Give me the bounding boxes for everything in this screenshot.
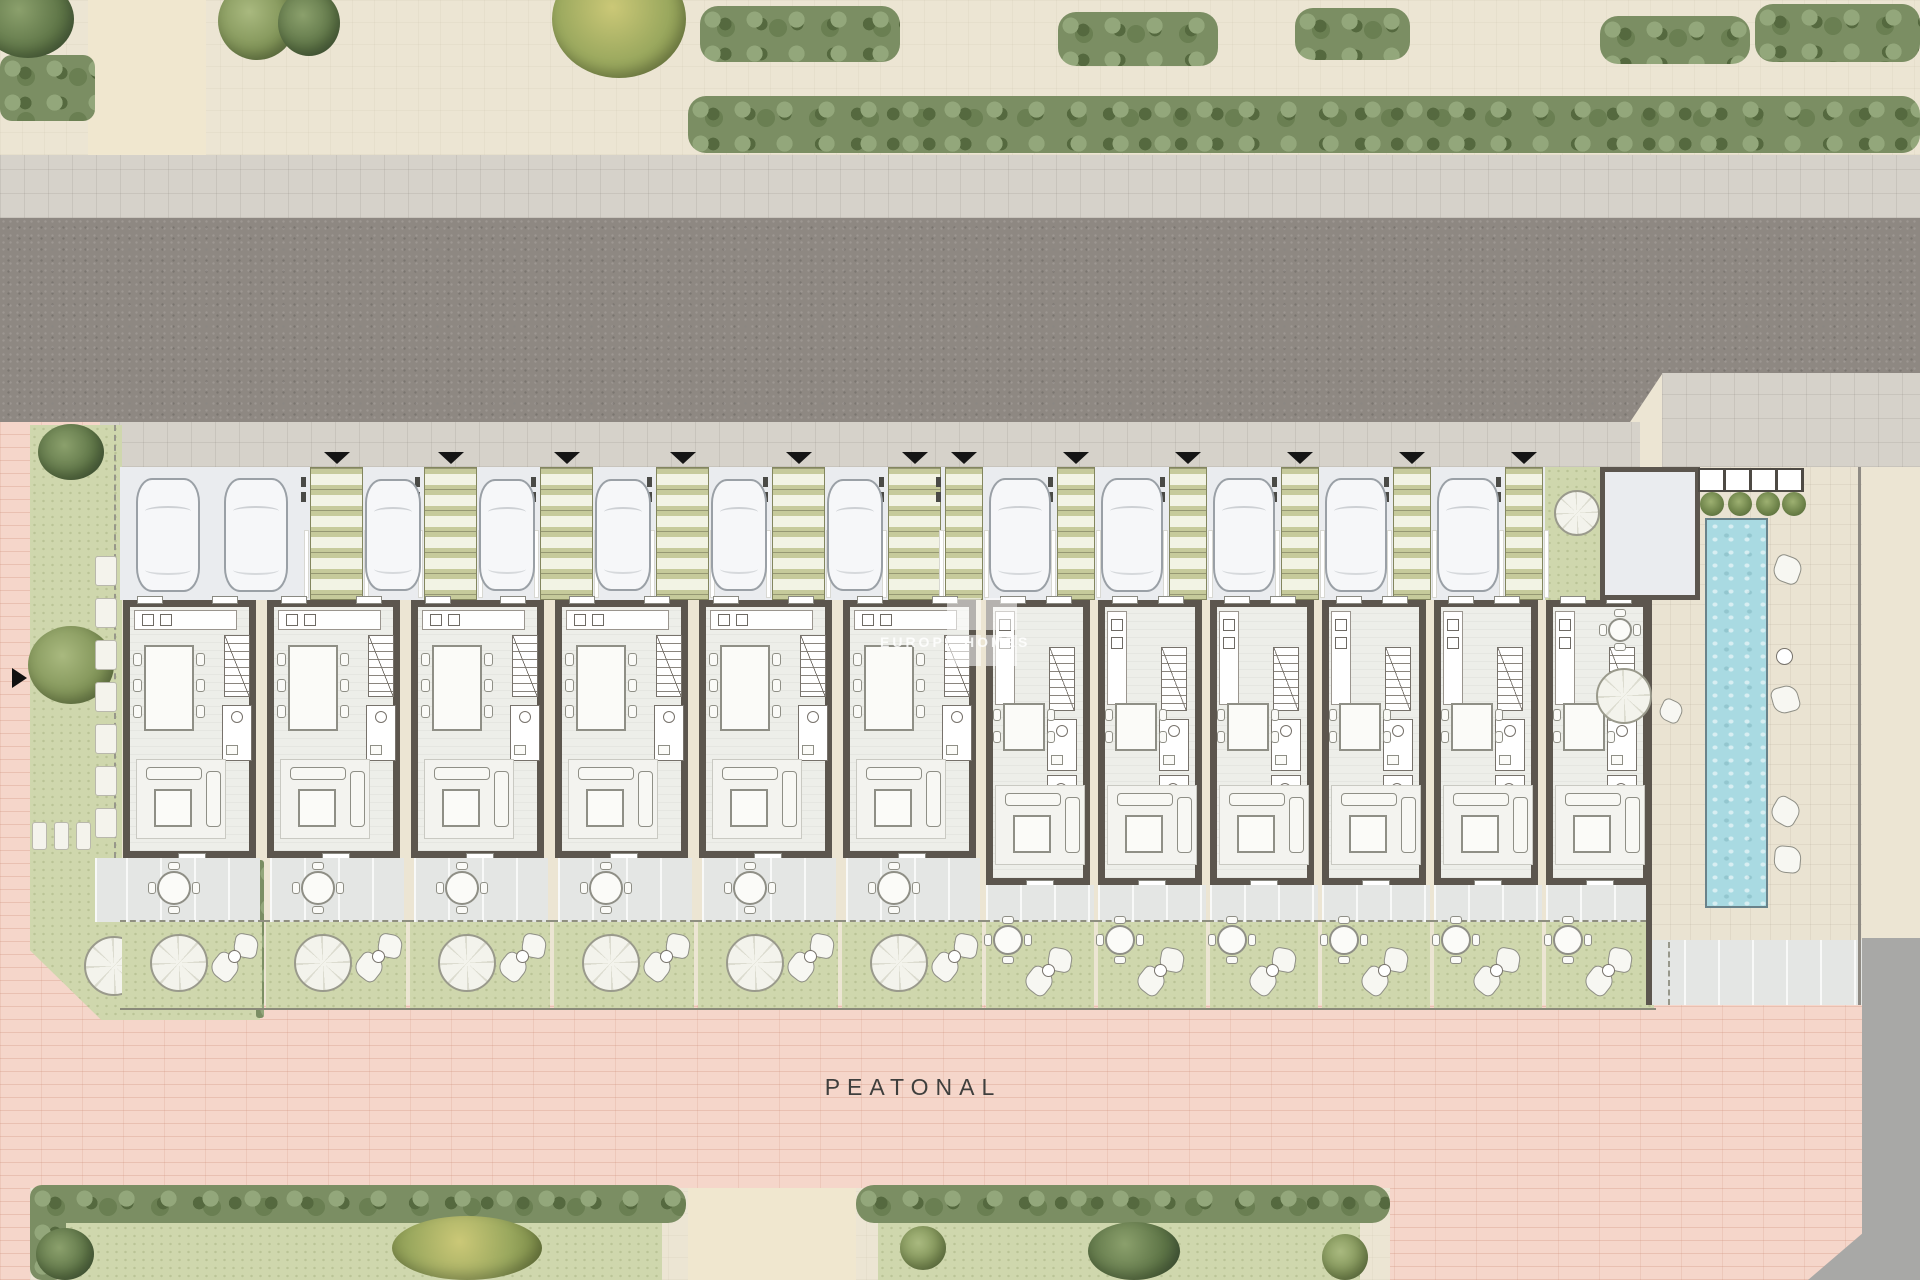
pool-court-wall-east	[1858, 467, 1861, 1005]
deck-boundary-dashed	[1668, 942, 1670, 1005]
chair	[1614, 609, 1626, 617]
garage-unit-12	[1600, 467, 1700, 600]
watermark: EUROPE HOMES	[880, 590, 1120, 685]
pedestrian-street-label: PEATONAL	[790, 1074, 1036, 1101]
swimming-pool	[1705, 518, 1768, 908]
watermark-logo-block	[947, 635, 981, 666]
lounger-pillow-icon	[1773, 845, 1802, 874]
planter-plant-icon	[1728, 492, 1752, 516]
chair	[1614, 643, 1626, 651]
site-plan-canvas: EUROPE HOMES PEATONAL	[0, 0, 1920, 1280]
chair	[1633, 624, 1641, 636]
chair	[1599, 624, 1607, 636]
side-table-icon	[1776, 648, 1793, 665]
planter-plant-icon	[1700, 492, 1724, 516]
planter-plant-icon	[1782, 492, 1806, 516]
pergola-skylights	[1698, 468, 1804, 492]
pool-court-drive	[1650, 940, 1862, 1005]
watermark-logo-block	[986, 635, 1017, 666]
planter-plant-icon	[1756, 492, 1780, 516]
round-table-icon	[1608, 618, 1632, 642]
watermark-logo-block	[947, 598, 981, 630]
parasol-icon	[1596, 668, 1652, 724]
entry-arrow-icon	[12, 668, 27, 688]
watermark-logo-block	[986, 598, 1017, 630]
